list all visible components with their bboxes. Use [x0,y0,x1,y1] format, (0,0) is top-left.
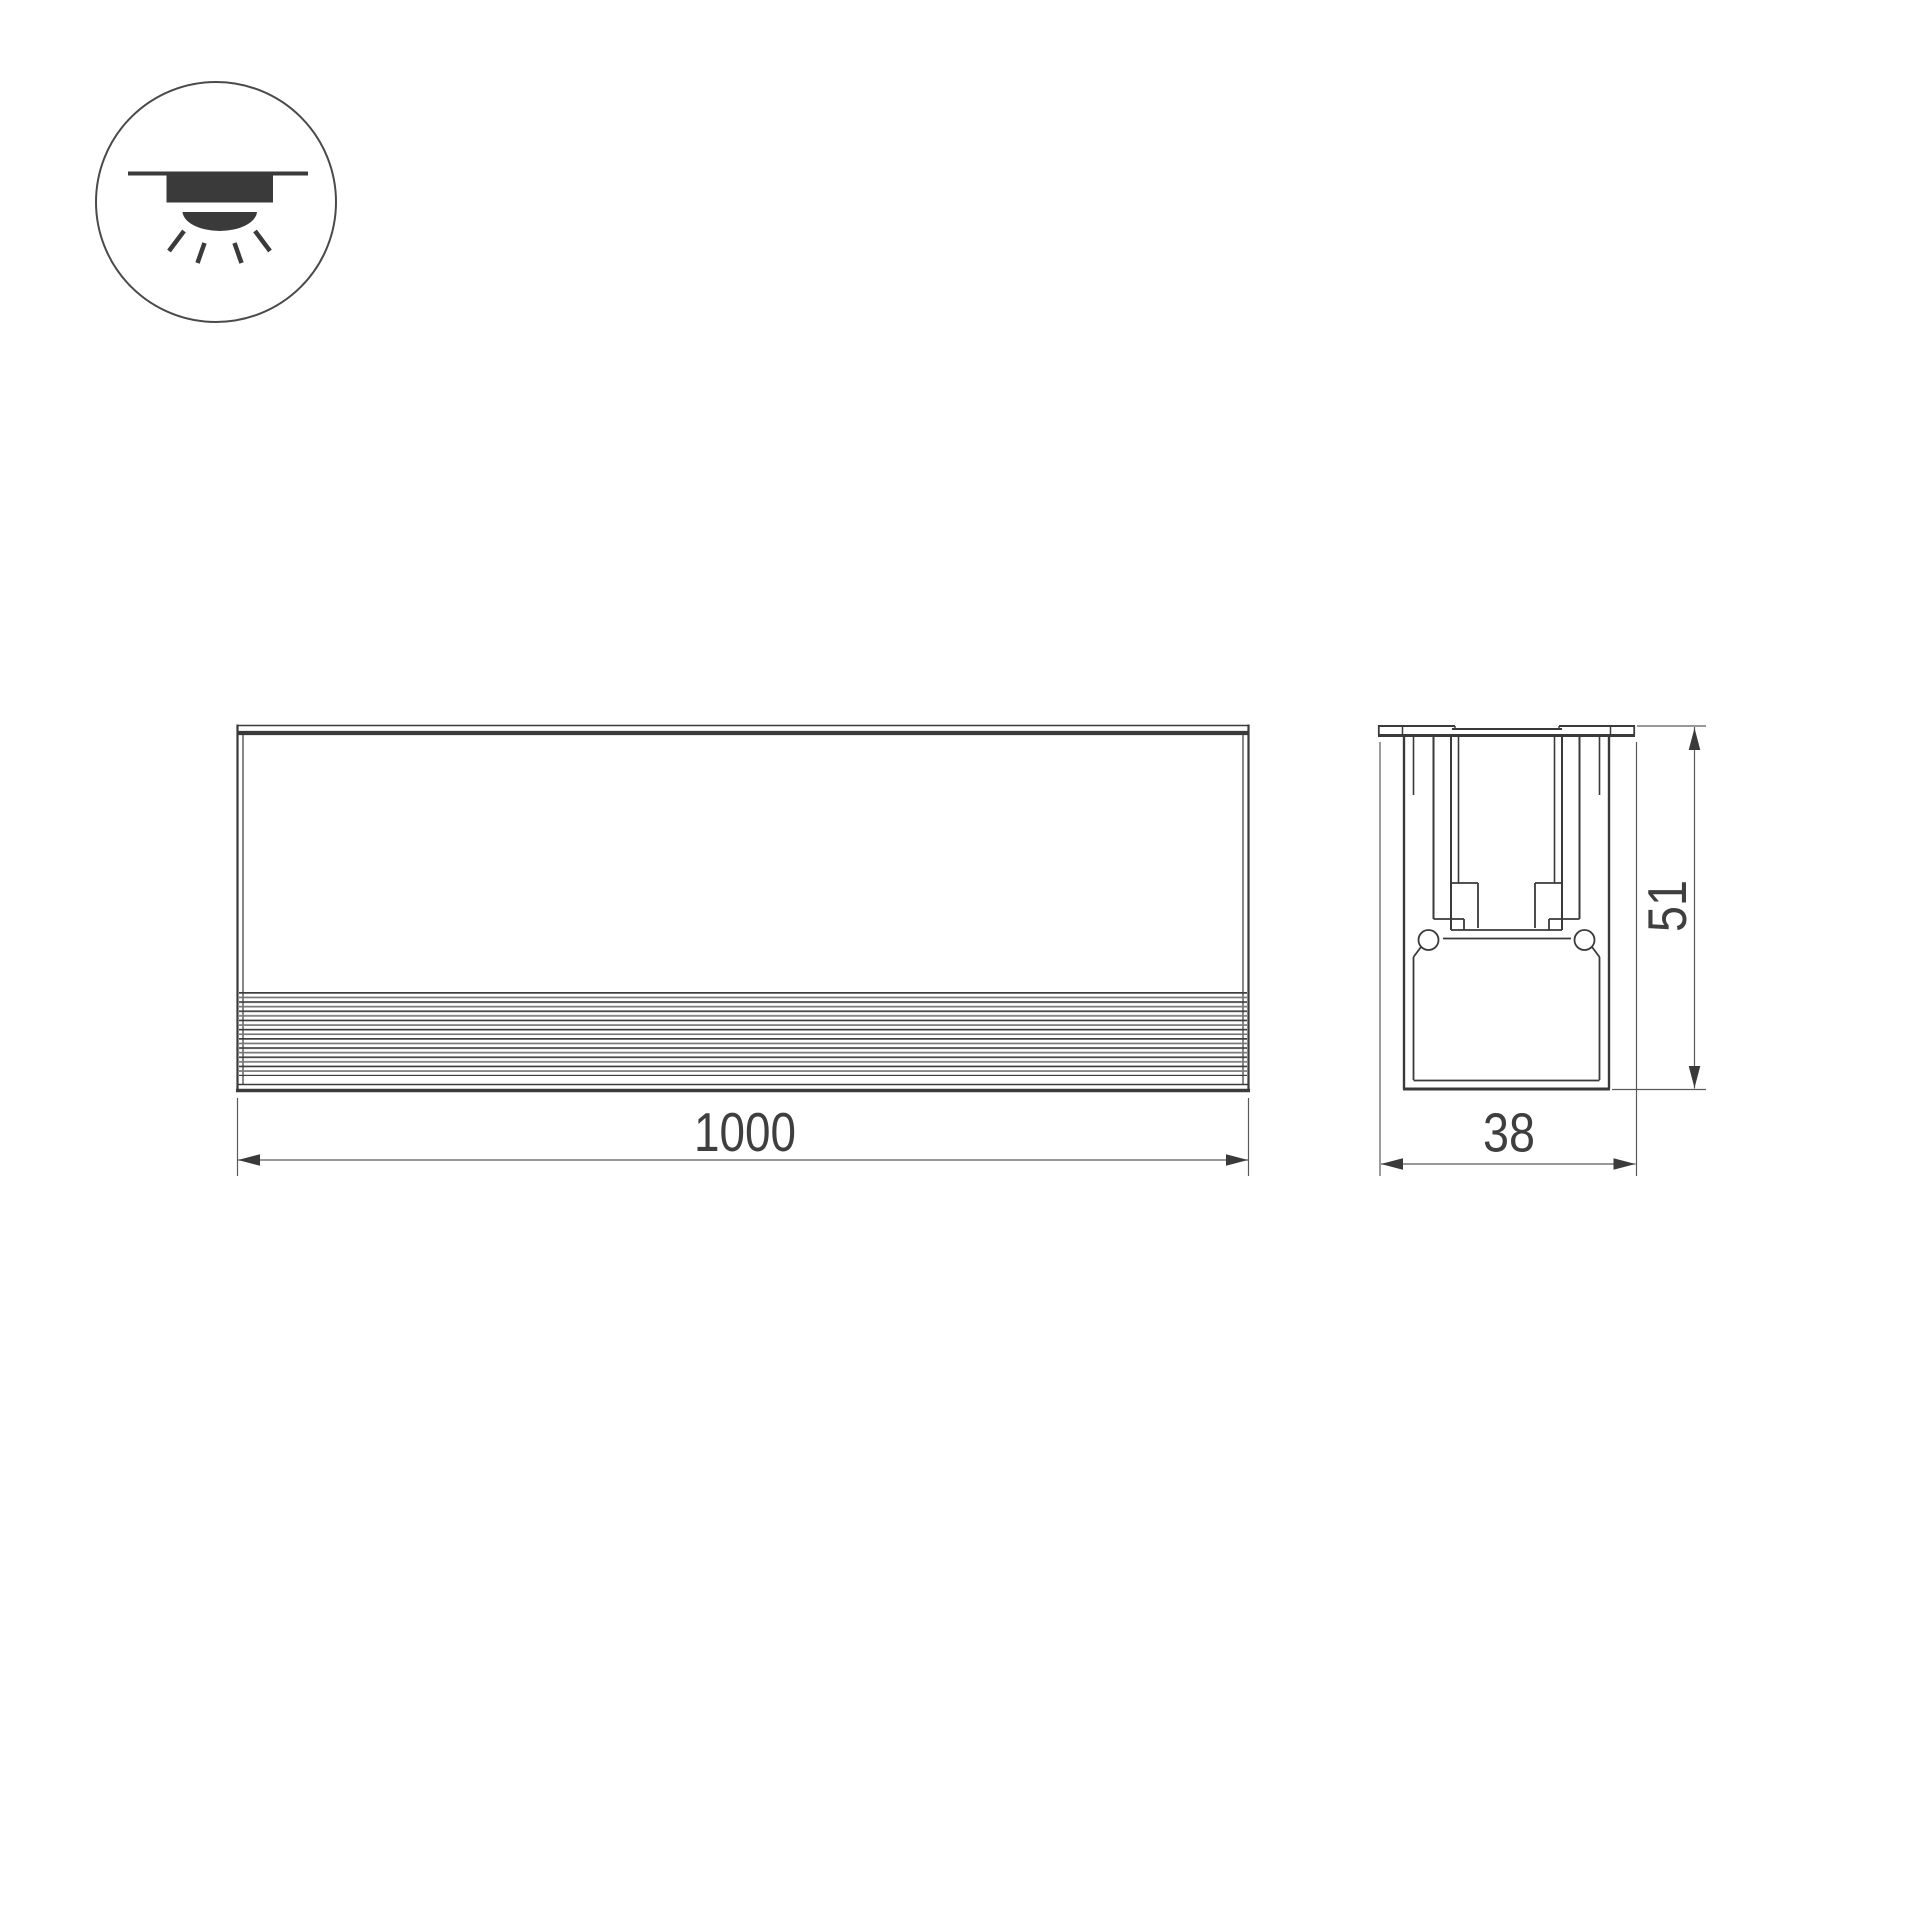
dim-arrow-right [1614,1158,1636,1170]
section-screw-bosses [1414,930,1600,957]
dim-arrow-bottom [1689,1066,1701,1088]
section-width-dimension: 38 [1380,742,1637,1176]
section-outer-walls [1404,735,1609,1089]
front-ribbed-diffuser [239,992,1247,1076]
dim-arrow-left [1381,1158,1403,1170]
section-height-value: 51 [1636,880,1698,932]
dim-arrow-top [1689,728,1701,750]
front-width-value: 1000 [694,1101,796,1163]
section-height-dimension: 51 [1612,726,1706,1090]
section-top-cap [1378,725,1635,736]
technical-drawing-canvas: 1000 [0,0,1920,1920]
icon-housing [167,175,274,203]
section-view [1378,725,1635,1089]
front-width-dimension: 1000 [238,1098,1249,1176]
dim-arrow-right [1226,1154,1248,1166]
front-view [236,725,1250,1093]
section-width-value: 38 [1483,1102,1535,1164]
section-shelf [1434,919,1580,939]
icon-light-rays [169,231,270,263]
section-track-channel [1451,735,1562,930]
drawing-svg: 1000 [0,0,1920,1920]
dim-arrow-left [238,1154,260,1166]
icon-ceiling-line [128,172,308,176]
icon-lens-dome [183,212,258,231]
recessed-downlight-icon [96,82,336,322]
section-lower-box [1403,957,1610,1089]
